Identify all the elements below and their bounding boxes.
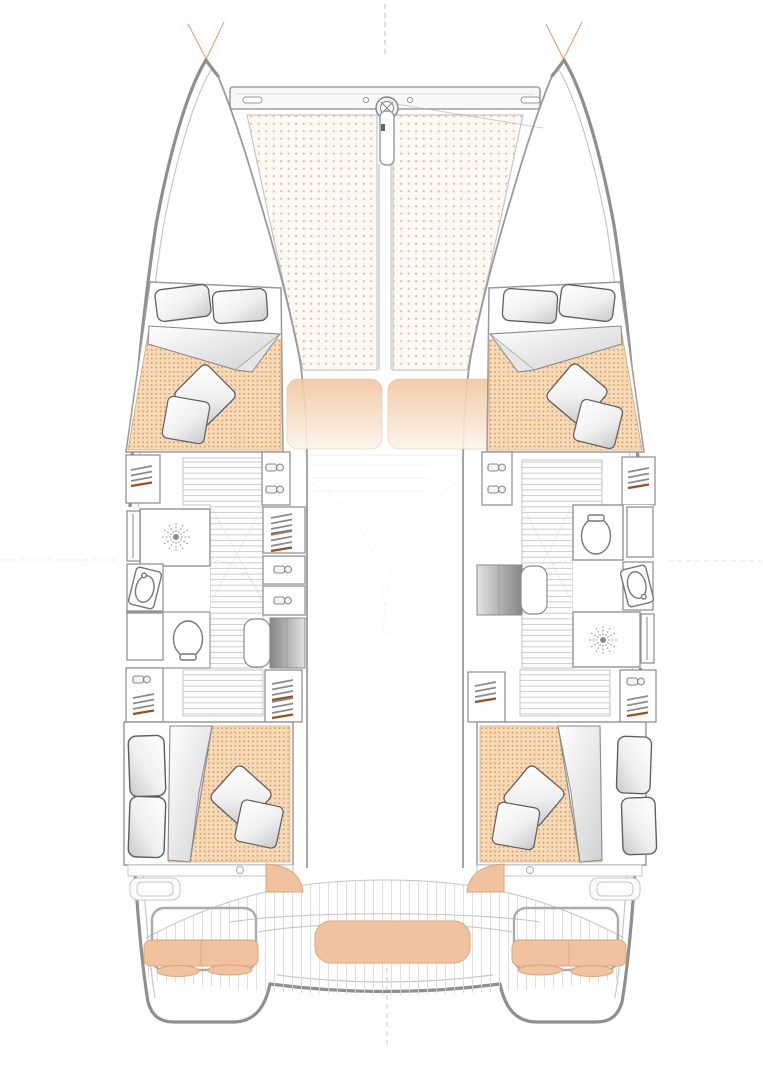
stern-locker-lid xyxy=(137,882,173,896)
catamaran-floorplan-page xyxy=(0,0,763,1080)
latch-handle-icon xyxy=(274,566,291,573)
saloon-ghost xyxy=(308,465,462,636)
crossbeam-handle-slot xyxy=(521,97,540,103)
cabin-aft-starboard xyxy=(477,722,657,865)
latch-handle-icon xyxy=(488,464,505,471)
bolt-hole-icon xyxy=(407,97,412,102)
bed-pillow xyxy=(616,736,652,794)
bathroom-starboard xyxy=(573,505,654,668)
aft-cabin-steps xyxy=(183,670,263,716)
cockpit-corner-seat xyxy=(467,864,504,892)
foredeck-cushion-port xyxy=(287,379,382,449)
stern-locker-lid xyxy=(597,882,633,896)
latch-handle-icon xyxy=(488,486,505,493)
latch-handle-icon xyxy=(266,486,283,493)
port-aft-row xyxy=(126,668,302,722)
latch-handle-icon xyxy=(627,678,644,685)
cabin-aft-port xyxy=(124,722,293,865)
bowsprit-strut xyxy=(380,111,394,165)
port-mid-section xyxy=(126,452,305,668)
desk-seat xyxy=(244,619,270,667)
bow-rigging xyxy=(188,22,582,72)
center-bench-cushion xyxy=(315,921,470,963)
under-sink-cabinet xyxy=(127,613,163,660)
starboard-aft-row xyxy=(468,670,656,722)
deck-fill-icon xyxy=(237,867,244,874)
starboard-mid-section xyxy=(477,452,655,668)
latch-handle-icon xyxy=(266,464,283,471)
starboard-bow-tip xyxy=(552,60,564,76)
bed-pillow xyxy=(128,796,166,858)
shower-stall xyxy=(573,612,640,667)
storage-locker xyxy=(482,452,512,505)
bathroom-cabinet xyxy=(627,507,653,557)
throw-pillow xyxy=(161,395,210,444)
bolt-hole-icon xyxy=(363,97,368,102)
foredeck-cushions xyxy=(287,379,495,455)
bed-pillow xyxy=(154,284,211,322)
cabin-forward-starboard xyxy=(487,282,644,452)
bed-pillow xyxy=(558,284,615,322)
bed-pillow xyxy=(212,288,268,324)
floorplan-canvas xyxy=(0,0,763,1080)
storage-locker xyxy=(262,452,290,505)
crossbeam-handle-slot xyxy=(243,97,262,103)
desk-seat xyxy=(521,566,547,614)
cockpit-corner-seat xyxy=(266,864,303,892)
port-bow-tip xyxy=(206,60,218,76)
cabin-forward-port xyxy=(126,282,283,452)
bed-pillow xyxy=(621,797,657,855)
seat-pad xyxy=(208,965,252,975)
seat-pad xyxy=(157,966,199,977)
aft-cockpit xyxy=(128,864,642,995)
throw-pillow xyxy=(234,799,284,849)
bathroom-port xyxy=(126,507,210,668)
throw-pillow xyxy=(491,801,540,850)
wardrobe xyxy=(263,507,305,553)
bed-pillow xyxy=(502,288,558,324)
seat-pad xyxy=(571,966,613,977)
seat-pad xyxy=(518,965,562,975)
foredeck-cushion-starboard xyxy=(388,379,495,449)
bed-pillow xyxy=(128,735,166,797)
wardrobe xyxy=(468,672,505,722)
latch-handle-icon xyxy=(274,597,291,604)
aft-cabin-steps xyxy=(520,670,610,716)
desk-port xyxy=(270,618,305,668)
latch-handle-icon xyxy=(133,676,150,683)
deck-fill-icon xyxy=(527,867,534,874)
wardrobe xyxy=(265,670,302,722)
port-hull-interior xyxy=(124,282,305,865)
strut-latch xyxy=(381,124,385,131)
starboard-hull-interior xyxy=(468,282,657,865)
desk-starboard xyxy=(477,565,522,615)
